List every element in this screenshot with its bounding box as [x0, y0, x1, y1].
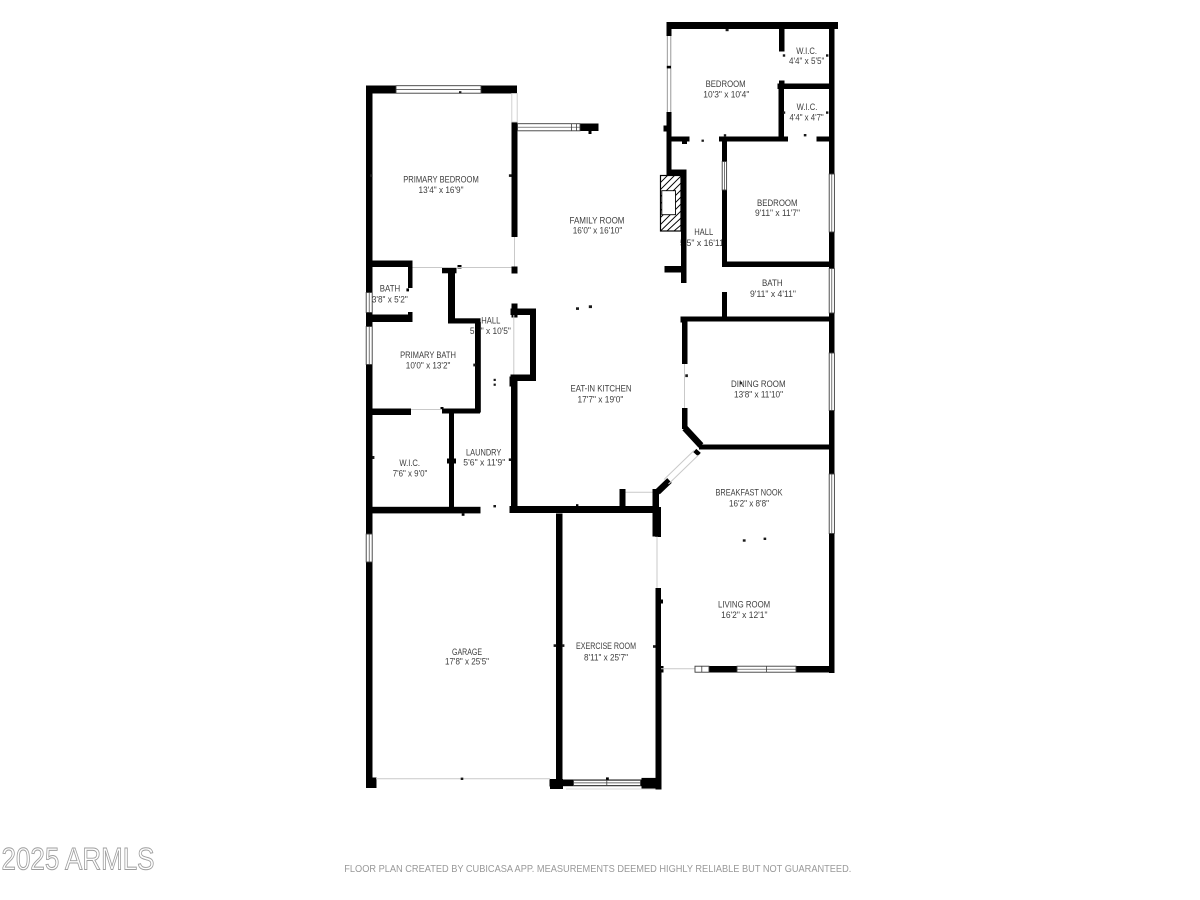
- svg-text:DINING ROOM: DINING ROOM: [731, 379, 786, 389]
- svg-text:9'11" x 11'7": 9'11" x 11'7": [755, 208, 800, 218]
- svg-text:FLOOR PLAN CREATED BY CUBICASA: FLOOR PLAN CREATED BY CUBICASA APP. MEAS…: [344, 864, 851, 875]
- svg-text:EAT-IN KITCHEN: EAT-IN KITCHEN: [571, 383, 632, 393]
- svg-text:FAMILY ROOM: FAMILY ROOM: [570, 215, 625, 225]
- svg-text:9'11" x 4'11": 9'11" x 4'11": [750, 289, 796, 299]
- svg-text:10'0" x 13'2": 10'0" x 13'2": [406, 361, 451, 371]
- svg-text:7'6" x 9'0": 7'6" x 9'0": [393, 468, 428, 478]
- svg-text:2025 ARMLS: 2025 ARMLS: [2, 841, 155, 877]
- svg-text:BEDROOM: BEDROOM: [706, 79, 746, 89]
- svg-text:3'8" x 5'2": 3'8" x 5'2": [372, 295, 408, 305]
- svg-text:BATH: BATH: [762, 278, 783, 288]
- svg-text:5'6" x 11'9": 5'6" x 11'9": [463, 458, 505, 468]
- svg-text:13'4" x 16'9": 13'4" x 16'9": [419, 185, 464, 195]
- svg-text:PRIMARY BEDROOM: PRIMARY BEDROOM: [403, 174, 479, 184]
- svg-text:17'7" x 19'0": 17'7" x 19'0": [578, 394, 624, 404]
- svg-text:5'5" x 16'11": 5'5" x 16'11": [680, 238, 727, 248]
- svg-text:EXERCISE ROOM: EXERCISE ROOM: [576, 641, 636, 651]
- svg-text:13'8" x 11'10": 13'8" x 11'10": [734, 390, 783, 400]
- svg-text:16'2" x 8'8": 16'2" x 8'8": [729, 499, 769, 509]
- svg-text:4'4" x 4'7": 4'4" x 4'7": [790, 112, 824, 122]
- svg-text:W.I.C.: W.I.C.: [796, 46, 817, 56]
- svg-text:BEDROOM: BEDROOM: [757, 198, 798, 208]
- svg-text:HALL: HALL: [694, 227, 713, 237]
- svg-text:LIVING ROOM: LIVING ROOM: [718, 599, 770, 609]
- svg-text:W.I.C.: W.I.C.: [399, 458, 420, 468]
- svg-text:LAUNDRY: LAUNDRY: [466, 448, 501, 458]
- svg-text:PRIMARY BATH: PRIMARY BATH: [400, 350, 456, 360]
- svg-text:16'0" x 16'10": 16'0" x 16'10": [573, 226, 623, 236]
- svg-text:8'11" x 25'7": 8'11" x 25'7": [584, 653, 628, 663]
- svg-text:BREAKFAST NOOK: BREAKFAST NOOK: [716, 488, 784, 498]
- svg-text:HALL: HALL: [481, 315, 500, 325]
- svg-text:17'8" x 25'5": 17'8" x 25'5": [445, 657, 489, 667]
- svg-text:10'3" x 10'4": 10'3" x 10'4": [703, 90, 749, 100]
- svg-text:16'2" x 12'1": 16'2" x 12'1": [721, 610, 767, 620]
- svg-text:GARAGE: GARAGE: [452, 647, 482, 657]
- svg-text:BATH: BATH: [380, 284, 400, 294]
- svg-text:4'4" x 5'5": 4'4" x 5'5": [789, 56, 825, 66]
- svg-text:W.I.C.: W.I.C.: [797, 102, 818, 112]
